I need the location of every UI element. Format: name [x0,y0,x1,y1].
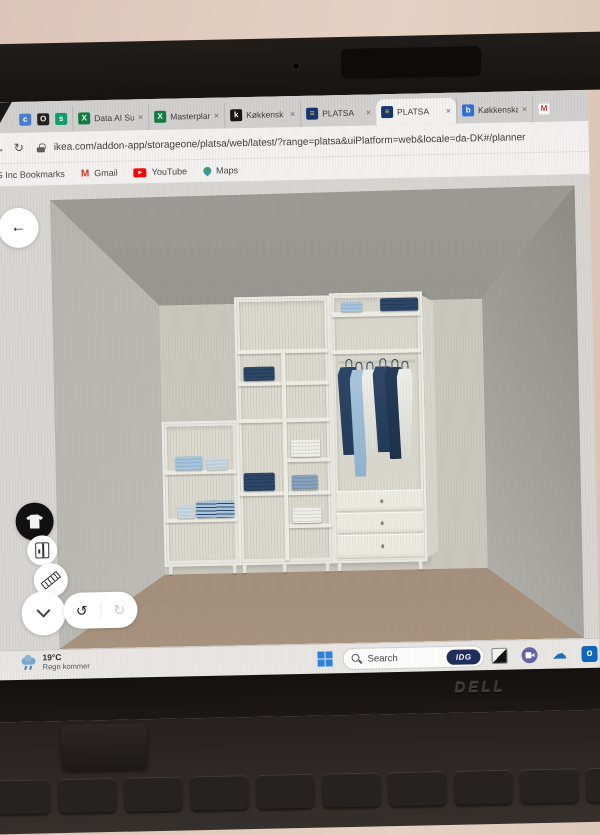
folded-stack [244,473,275,492]
ruler-icon [41,571,62,590]
maps-pin-icon [201,165,212,176]
undo-redo-group: ↺ ↻ [63,591,138,629]
drawer-knob [380,499,383,503]
tab-label: Køkkensk [246,109,286,120]
teams-icon[interactable] [521,647,537,663]
leg [169,567,173,575]
planner-3d-scene[interactable] [0,175,599,651]
tshirt-icon [26,514,43,528]
drawer-knob [381,521,384,525]
tab-label: PLATSA [322,108,362,119]
keyboard-key [58,778,117,813]
wardrobe-frame-icon [35,542,49,558]
taskbar-search[interactable]: Search IDG [342,645,484,670]
undo-button[interactable]: ↺ [63,602,100,620]
folded-stack [243,367,274,382]
folded-stack [177,505,195,518]
keyboard-key [124,777,183,812]
weather-description: Regn kommer [43,662,90,672]
browser-tab[interactable]: bKøkkenska× [456,96,533,124]
bookmark-item[interactable]: DG Inc Bookmarks [0,169,65,181]
bookmark-label: DG Inc Bookmarks [0,169,65,181]
tab-label: Køkkenska [478,104,518,115]
leg [283,564,287,572]
wardrobe-configuration [0,175,599,651]
folded-stack [341,302,362,312]
bookmark-item[interactable]: MGmail [81,167,118,179]
gmail-icon: M [81,168,90,179]
forward-icon[interactable]: → [0,141,5,155]
leg [419,561,423,569]
browser-tab[interactable]: ≡PLATSA× [376,98,457,126]
bookmark-label: Maps [216,165,238,175]
pinned-tab-icon[interactable]: O [37,113,49,125]
keyboard-key [256,774,315,809]
leg [326,563,330,571]
tab-close-icon[interactable]: × [446,106,451,116]
pinned-tabs: cOs [14,106,73,133]
folded-stack [206,458,227,470]
outlook-icon[interactable]: o [581,646,597,662]
lock-icon[interactable] [37,143,45,152]
laptop-keyboard-deck [0,709,600,834]
tab-close-icon[interactable]: × [366,107,371,117]
tab-label: Masterplan [170,111,210,122]
bookmark-label: YouTube [152,166,188,177]
start-button[interactable] [317,651,332,666]
keyboard-key [190,775,249,810]
webcam-module [341,46,482,79]
pinned-tab-icon[interactable]: c [19,114,31,126]
tab-favicon: k [230,109,242,121]
keyboard-key [520,768,579,803]
hanger-hook [379,358,386,366]
weather-text: 19°C Regn kommer [42,652,89,671]
leg [243,565,247,573]
hanger-hook [391,359,398,367]
redo-button[interactable]: ↻ [100,601,138,619]
tab-favicon: X [78,112,90,124]
dell-logo: DELL [454,679,506,697]
hanger-hook [401,361,408,369]
hanger-hook [345,359,352,367]
weather-widget[interactable]: 19°C Regn kommer [21,652,89,672]
drawer-knob [381,544,384,548]
tab-label: PLATSA [397,106,442,117]
tab-close-icon[interactable]: × [138,112,143,122]
keyboard-keys [0,767,600,815]
keyboard-key [388,771,447,806]
bookmark-label: Gmail [94,168,118,178]
tab-favicon: X [154,111,166,123]
laptop: cOs XData AI Su×XMasterplan×kKøkkensk×≡P… [0,32,600,835]
folded-stack [292,508,321,524]
idg-badge: IDG [447,649,481,665]
folded-stack [175,456,202,471]
rain-icon [21,656,37,670]
hinge [61,723,148,771]
tab-close-icon[interactable]: × [522,104,527,114]
folded-stack [196,500,234,518]
pinned-tab-icon[interactable]: s [55,113,67,125]
bookmark-item[interactable]: Maps [203,165,238,176]
planner-viewport[interactable]: ← ↺ ↻ [0,175,599,651]
tab-close-icon[interactable]: × [290,109,295,119]
hanger-hook [366,361,373,369]
youtube-icon [134,168,147,177]
browser-tab[interactable]: M [532,95,577,122]
folded-stack [291,440,320,458]
laptop-screen: cOs XData AI Su×XMasterplan×kKøkkensk×≡P… [0,90,600,680]
browser-tab[interactable]: XMasterplan× [148,103,225,131]
back-arrow-icon: ← [10,219,26,237]
keyboard-key [586,767,600,802]
webcam-icon [292,62,300,70]
left-unit-interior [167,425,236,560]
hanger-hook [355,362,362,370]
tab-favicon: M [538,103,550,115]
search-icon [351,654,361,664]
bookmark-item[interactable]: YouTube [134,166,188,177]
chevron-down-icon [36,604,50,618]
folded-stack [380,297,418,311]
keyboard-key [322,772,381,807]
app-window-icon[interactable] [491,648,507,664]
tab-favicon: ≡ [381,106,393,118]
tab-favicon: b [462,104,474,116]
browser-tab[interactable]: XData AI Su× [72,104,149,132]
browser-tab[interactable]: kKøkkensk× [224,101,301,129]
keyboard-key [0,779,51,814]
folded-stack [292,475,318,491]
leg [233,565,237,573]
browser-tab[interactable]: ≡PLATSA× [300,99,377,127]
tab-favicon: ≡ [306,108,318,120]
tab-close-icon[interactable]: × [214,111,219,121]
address-bar[interactable]: ikea.com/addon-app/storageone/platsa/web… [54,132,526,153]
search-placeholder: Search [367,652,440,665]
onedrive-icon[interactable]: ☁ [551,646,567,662]
tab-label: Data AI Su [94,112,134,123]
reload-icon[interactable]: ↻ [14,141,24,155]
leg [338,563,342,571]
